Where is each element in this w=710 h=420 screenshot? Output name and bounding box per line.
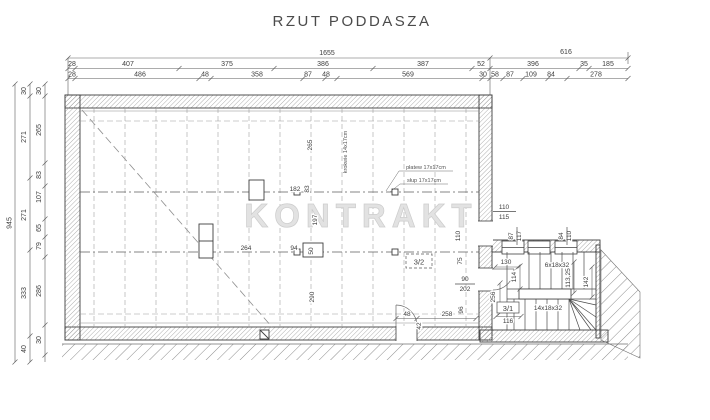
dim-616: 616	[560, 49, 572, 56]
dim-label: 116	[503, 318, 514, 325]
dim-label: 107	[36, 191, 43, 203]
dim-label: 83	[36, 171, 43, 179]
dim-label: 48	[201, 72, 209, 79]
dim-label: 130	[501, 259, 512, 266]
dim-label: 30	[36, 336, 43, 344]
dim-label: 202	[460, 286, 471, 293]
dim-label: 358	[251, 72, 263, 79]
dim-label: 185	[602, 61, 614, 68]
top-dim-labels: 1655 616 28 407 375 386 387 52 396 35 18…	[68, 49, 614, 79]
dim-label: 271	[21, 131, 28, 143]
room-number: 3/1	[503, 304, 513, 313]
dim-1655: 1655	[319, 50, 335, 57]
room-number: 3/2	[414, 258, 424, 267]
dim-label: 256	[490, 291, 497, 302]
dim-label: 65	[36, 224, 43, 232]
dim-945: 945	[7, 217, 14, 229]
left-dim-lines	[13, 82, 48, 365]
dim-label: 28	[68, 72, 76, 79]
dim-label: 50	[308, 247, 315, 255]
dim-label: 333	[21, 287, 28, 299]
dim-label: 96	[458, 306, 465, 314]
dim-label: 182	[290, 186, 301, 193]
dim-label: 58	[491, 72, 499, 79]
watermark: KONTRAKT	[244, 197, 477, 234]
dim-label: 271	[21, 209, 28, 221]
dim-label: 286	[36, 285, 43, 297]
dim-label: 84	[547, 72, 555, 79]
dim-label: 42	[416, 322, 423, 330]
dim-label: 110	[499, 204, 510, 211]
dim-label: 110	[455, 230, 462, 241]
dim-label: 265	[307, 139, 314, 150]
dim-label: 75	[457, 257, 464, 265]
dim-label: 407	[122, 61, 134, 68]
dim-label: 48	[403, 311, 411, 318]
dim-label: 30	[479, 72, 487, 79]
dim-label: 569	[402, 72, 414, 79]
dim-label: 258	[442, 311, 453, 318]
dim-label: 113,25	[565, 268, 572, 288]
dim-label: 265	[36, 124, 43, 136]
dim-label: 386	[317, 61, 329, 68]
dim-label: 396	[527, 61, 539, 68]
drawing-sheet: RZUT PODDASZA 1655 616 28 407 375 386 38…	[0, 0, 710, 420]
dim-label: 83	[304, 185, 311, 193]
dim-label: 486	[134, 72, 146, 79]
dim-label: 48	[322, 72, 330, 79]
dim-label: 387	[417, 61, 429, 68]
dim-label: 264	[241, 245, 252, 252]
dim-label: 30	[36, 87, 43, 95]
dim-label: 90	[461, 276, 469, 283]
dim-label: 87	[508, 232, 515, 240]
dim-label: 290	[309, 291, 316, 302]
dim-label: 109	[525, 72, 537, 79]
drawing-title: RZUT PODDASZA	[273, 13, 432, 30]
top-dim-lines	[66, 52, 631, 95]
dim-label: 87	[506, 72, 514, 79]
dim-label: 30	[21, 87, 28, 95]
dim-label: 142	[583, 276, 590, 287]
rafters-label: krokwie 14x17cm	[343, 130, 349, 173]
dim-label: 28	[68, 61, 76, 68]
dim-label: 79	[36, 242, 43, 250]
dim-label: 87	[304, 72, 312, 79]
winder-fan	[569, 299, 596, 330]
dim-label: 52	[477, 61, 485, 68]
purlin-label: płatew 17x17cm	[406, 165, 446, 171]
dim-label: 114	[511, 271, 518, 282]
dim-label: 84	[558, 232, 565, 240]
dim-label: 35	[580, 61, 588, 68]
attic-plan-drawing: RZUT PODDASZA 1655 616 28 407 375 386 38…	[0, 0, 710, 420]
structure-annotations: krokwie 14x17cm płatew 17x17cm słup 17x1…	[343, 130, 453, 192]
post-label: słup 17x17cm	[407, 178, 441, 184]
dim-label: 197	[312, 214, 319, 225]
dim-label: 115	[499, 214, 510, 221]
left-dim-labels: 945 30 271 271 333 40 30 265 83 107 65 7…	[7, 87, 44, 353]
dim-label: 94	[290, 245, 298, 252]
dim-label: 40	[21, 345, 28, 353]
stairs-upper-label: 6x18x32	[545, 262, 570, 269]
dim-label: 278	[590, 72, 602, 79]
stairs-lower-label: 14x18x32	[534, 305, 563, 312]
dim-label: 375	[221, 61, 233, 68]
